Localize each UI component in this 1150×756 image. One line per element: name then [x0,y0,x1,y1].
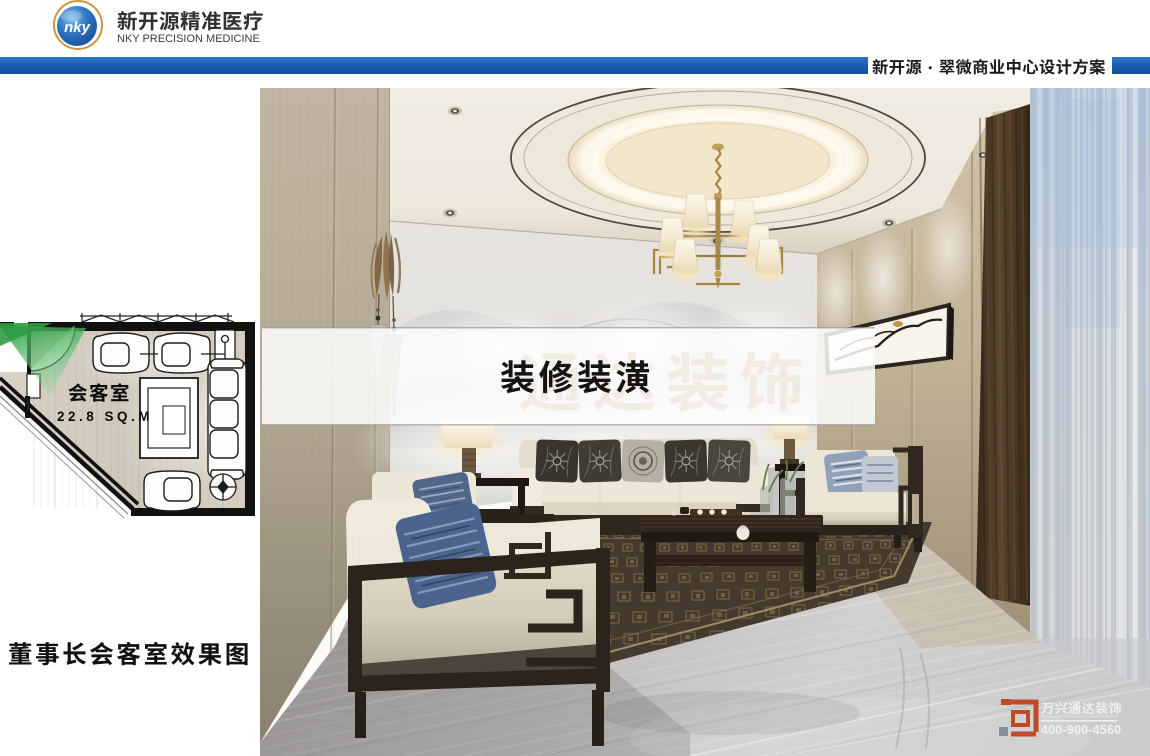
svg-text:400-900-4560: 400-900-4560 [1041,723,1121,737]
svg-text:NKY PRECISION MEDICINE: NKY PRECISION MEDICINE [117,33,260,45]
svg-text:22.8 SQ.M: 22.8 SQ.M [57,409,153,424]
svg-text:nky: nky [64,19,91,36]
